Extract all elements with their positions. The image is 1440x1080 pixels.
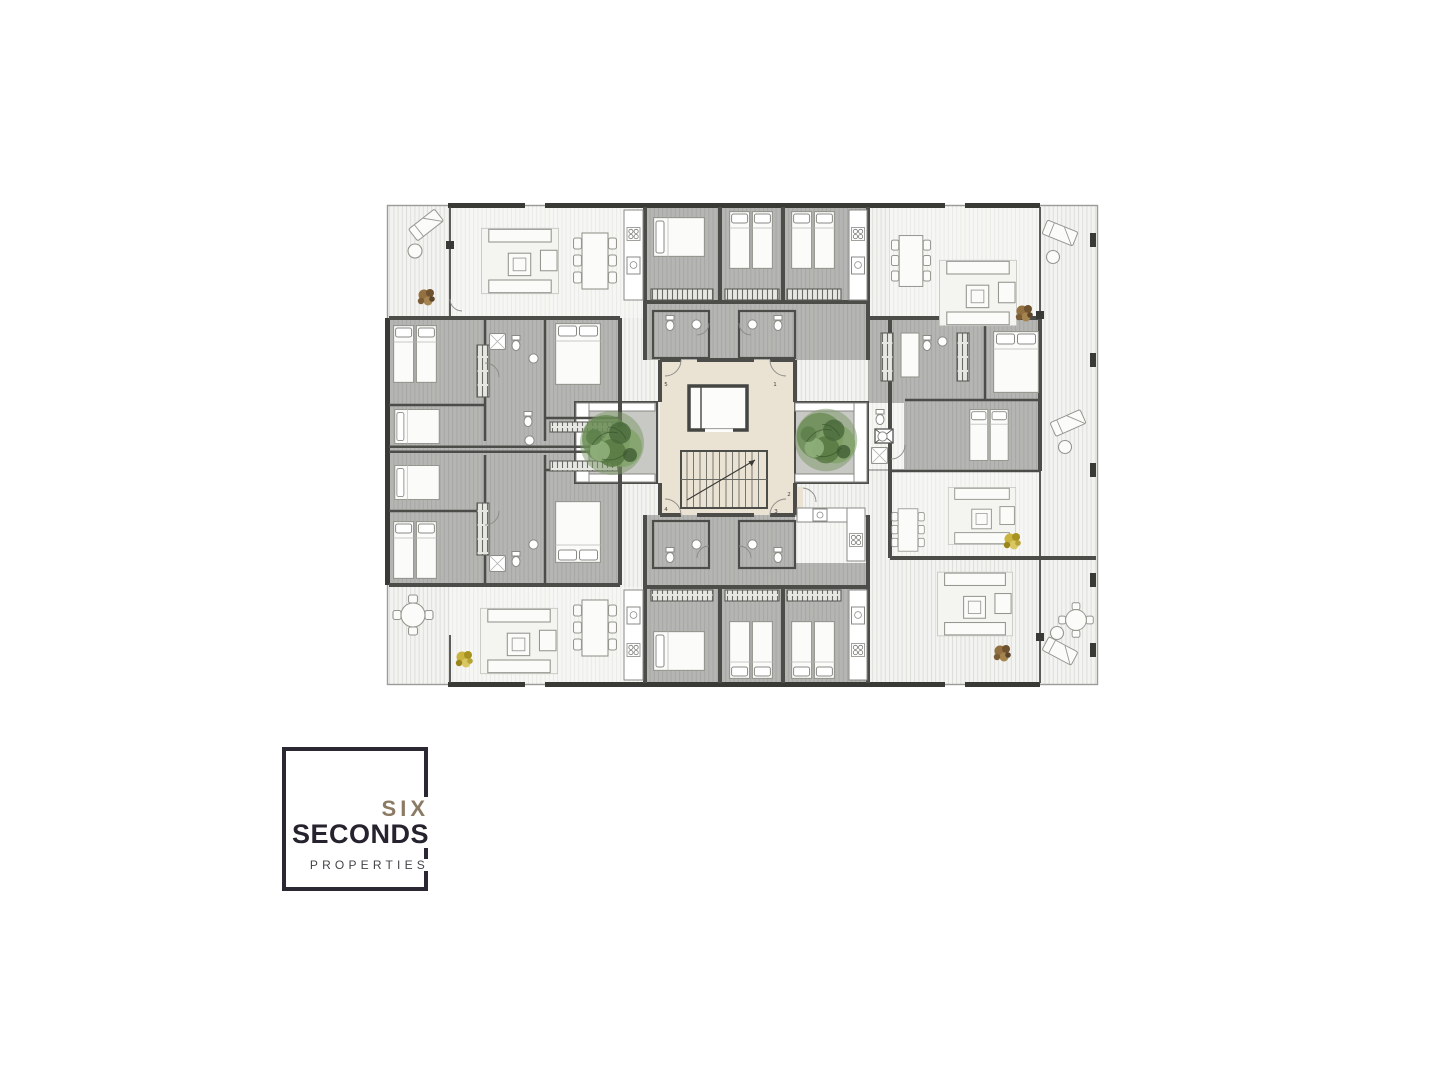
tree-icon <box>580 411 644 475</box>
side-table <box>1051 627 1064 640</box>
dining-table <box>574 600 617 656</box>
sofa-set <box>481 228 558 293</box>
logo-text: SIX SECONDS PROPERTIES <box>289 797 432 871</box>
unit-label-1: 1 <box>773 382 777 388</box>
dining-table <box>574 233 617 289</box>
sink-icon <box>748 540 757 549</box>
sink-icon <box>692 320 701 329</box>
toilet-icon <box>876 410 884 425</box>
bench <box>901 333 919 377</box>
bed-double <box>994 332 1039 393</box>
logo-word-properties: PROPERTIES <box>289 859 432 871</box>
sink-icon <box>878 432 887 441</box>
sink-icon <box>529 540 538 549</box>
sofa-set <box>939 260 1016 325</box>
unit-label-5: 5 <box>664 382 668 388</box>
shower-icon <box>872 448 888 464</box>
toilet-icon <box>512 336 520 351</box>
bed-double <box>654 218 705 257</box>
sofa-set <box>937 572 1012 636</box>
kitchen-strip <box>849 590 867 680</box>
kitchen-strip <box>849 210 867 300</box>
brand-logo: SIX SECONDS PROPERTIES <box>282 747 428 891</box>
toilet-icon <box>524 412 532 427</box>
sink-icon <box>938 337 947 346</box>
logo-word-six: SIX <box>289 797 432 820</box>
toilet-icon <box>774 316 782 331</box>
bed-double <box>654 632 705 671</box>
toilet-icon <box>666 316 674 331</box>
logo-word-seconds: SECONDS <box>289 820 432 848</box>
sink-icon <box>525 436 534 445</box>
sink-icon <box>529 354 538 363</box>
kitchen-strip <box>624 210 643 300</box>
toilet-icon <box>923 336 931 351</box>
elevator <box>689 386 747 430</box>
toilet-icon <box>666 548 674 563</box>
kitchen-strip <box>624 590 643 680</box>
unit-label-3: 3 <box>774 509 778 515</box>
unit-label-4: 4 <box>664 507 668 513</box>
dining-table <box>892 509 925 551</box>
shower-icon <box>490 334 506 350</box>
bed-double <box>395 410 439 444</box>
toilet-icon <box>774 548 782 563</box>
floor-plan: 5 1 4 3 2 <box>385 203 1100 687</box>
side-table <box>408 244 422 258</box>
shower-icon <box>490 556 506 572</box>
sink-icon <box>692 540 701 549</box>
bed-double <box>395 466 439 500</box>
sink-icon <box>748 320 757 329</box>
bed-double <box>556 324 601 385</box>
side-table <box>1047 251 1060 264</box>
page-canvas: 5 1 4 3 2 SIX SECONDS PROPERTIES <box>0 0 1440 1080</box>
bed-double <box>556 502 601 563</box>
sofa-set <box>480 608 557 673</box>
unit-label-2: 2 <box>787 492 791 498</box>
tree-icon <box>795 409 857 471</box>
dining-table <box>891 236 930 287</box>
toilet-icon <box>512 552 520 567</box>
side-table <box>1059 441 1072 454</box>
